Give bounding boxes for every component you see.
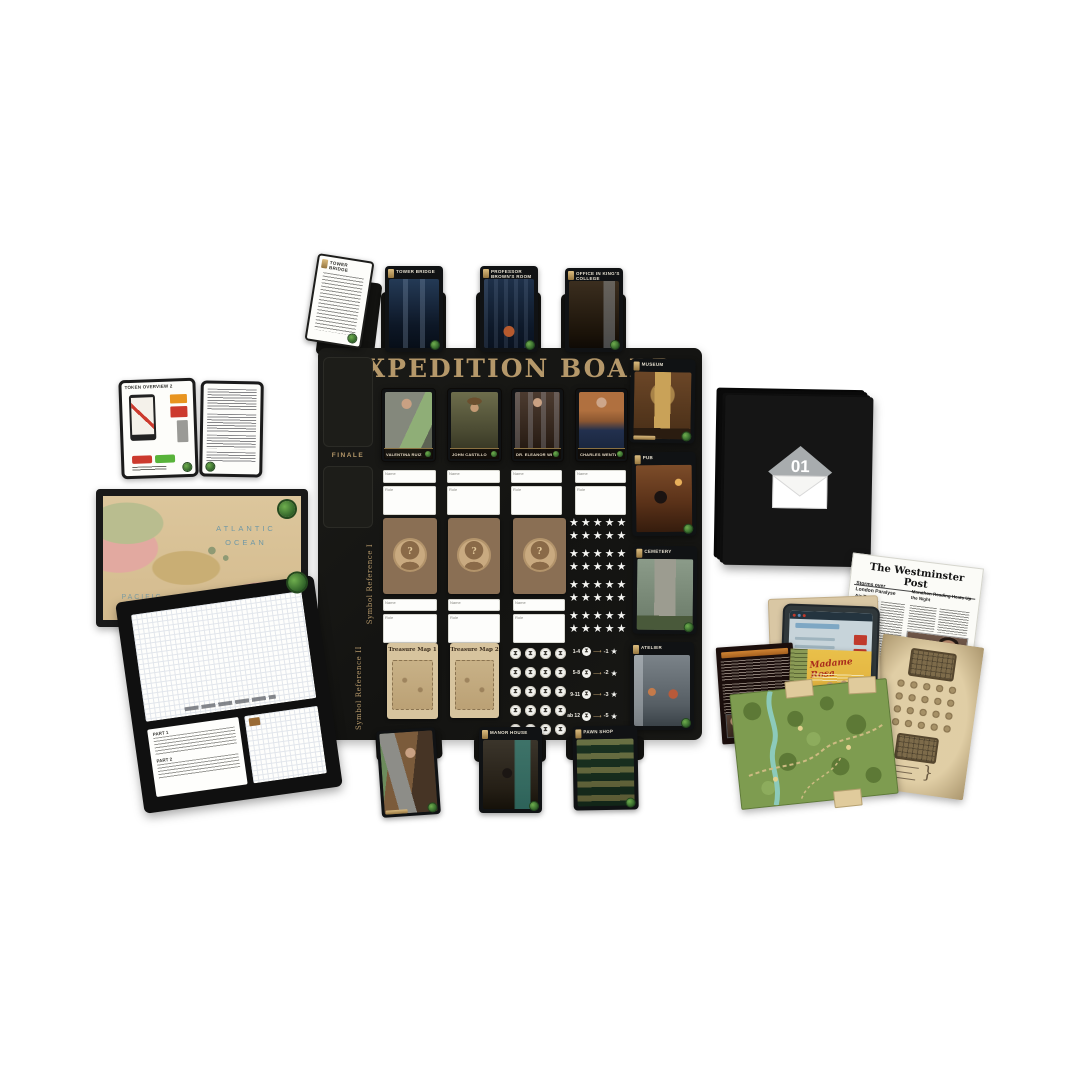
star-row: ★★★★★ xyxy=(569,516,628,529)
toolbar-dot-icon xyxy=(793,613,796,616)
mystery-character-card[interactable]: ? xyxy=(513,518,566,594)
star-icon: ★ xyxy=(569,517,579,529)
grid-note-sheet[interactable] xyxy=(244,706,327,784)
publisher-logo-icon xyxy=(684,525,692,533)
screen-link-bar xyxy=(795,623,839,630)
card-title: OFFICE IN KING'S COLLEGE xyxy=(576,271,620,281)
star-icon: ★ xyxy=(605,530,615,542)
text-lines xyxy=(721,657,791,682)
map-edge-tab xyxy=(833,788,863,808)
name-field[interactable]: Name xyxy=(447,470,500,483)
card-art xyxy=(636,465,693,532)
grid-note-sheet[interactable] xyxy=(131,591,316,722)
field-label: Name xyxy=(515,600,526,605)
star-icon: ★ xyxy=(605,517,615,529)
card-art xyxy=(634,655,690,726)
star-icon: ★ xyxy=(581,548,591,560)
phone-map-screen xyxy=(131,397,154,435)
star-icon: ★ xyxy=(581,592,591,604)
name-field[interactable]: Name xyxy=(511,470,562,483)
screen-text-line xyxy=(795,637,835,641)
star-penalty: -5 xyxy=(604,713,609,719)
location-type-icon xyxy=(575,729,581,738)
hourglass-token-icon[interactable]: ⧗ xyxy=(540,686,551,697)
token-overview-card[interactable]: TOKEN OVERVIEW 2 xyxy=(118,378,198,480)
location-card-manor-house[interactable]: MANOR HOUSE xyxy=(479,727,542,813)
star-icon: ★ xyxy=(593,517,603,529)
publisher-logo-icon xyxy=(617,451,623,457)
unknown-person-icon: ? xyxy=(523,538,557,572)
toolbar-dot-icon xyxy=(803,614,806,617)
stamp-icon xyxy=(249,717,261,726)
location-card-suitcase[interactable] xyxy=(376,727,441,818)
field-label: Role xyxy=(513,487,521,492)
publisher-logo-icon xyxy=(206,463,214,471)
star-icon: ★ xyxy=(581,623,591,635)
envelope-number: 01 xyxy=(791,457,810,476)
location-card-museum[interactable]: MUSEUM xyxy=(629,358,695,443)
symbol-reference-1-label: Symbol Reference I xyxy=(366,524,378,644)
stone-tablet-drawing xyxy=(894,733,939,765)
star-row: ★★★★★ xyxy=(569,529,628,542)
hourglass-token-icon[interactable]: ⧗ xyxy=(540,667,551,678)
character-card[interactable]: JOHN CASTILLO xyxy=(447,388,502,462)
token-range: 9-11 xyxy=(565,692,580,698)
name-field[interactable]: Name xyxy=(575,470,626,483)
publisher-logo-icon xyxy=(491,451,497,457)
token-range: ab 12 xyxy=(565,713,580,719)
notepad-board[interactable]: PART 1 PART 2 xyxy=(115,575,343,814)
character-name: CHARLES WENTWORTH xyxy=(580,452,616,457)
star-icon: ★ xyxy=(581,579,591,591)
newspaper-column xyxy=(907,605,937,632)
star-icon: ★ xyxy=(617,561,627,573)
star-icon: ★ xyxy=(617,517,627,529)
treasure-map-title: Treasure Map 2 xyxy=(450,647,499,653)
location-type-icon xyxy=(634,361,640,370)
name-field[interactable]: Name xyxy=(448,599,500,611)
text-lines xyxy=(207,435,256,450)
star-penalty: -3 xyxy=(604,692,609,698)
hourglass-token-grid: ⧗⧗⧗⧗⧗⧗⧗⧗⧗⧗⧗⧗⧗⧗⧗⧗⧗⧗⧗⧗ xyxy=(508,644,568,739)
hourglass-token-icon[interactable]: ⧗ xyxy=(525,686,536,697)
field-label: Name xyxy=(450,600,461,605)
character-name: JOHN CASTILLO xyxy=(452,452,490,457)
publisher-logo-icon xyxy=(553,451,559,457)
star-icon: ★ xyxy=(605,610,615,622)
star-icon: ★ xyxy=(593,623,603,635)
card-art xyxy=(633,372,691,440)
symbol-reference-2-label: Symbol Reference II xyxy=(355,645,367,731)
caption-text-lines xyxy=(132,466,166,472)
field-label: Role xyxy=(450,615,458,620)
publisher-logo-icon xyxy=(425,451,431,457)
star-icon: ★ xyxy=(581,517,591,529)
circle-glyph-grid xyxy=(888,676,961,737)
name-field[interactable]: Name xyxy=(383,599,437,611)
card-art xyxy=(484,279,534,348)
card-title: TOWER BRIDGE xyxy=(396,269,435,274)
empty-card-slot[interactable] xyxy=(323,466,373,528)
finale-label: FINALE xyxy=(323,452,373,459)
star-penalty: -1 xyxy=(604,649,609,655)
smartphone-illustration xyxy=(129,394,157,441)
card-footer-strip xyxy=(633,435,655,439)
publisher-logo-icon xyxy=(526,341,534,349)
location-type-icon xyxy=(636,549,642,558)
role-field[interactable]: Role xyxy=(383,486,436,515)
character-name: DR. ELEANOR WILDE xyxy=(516,452,552,457)
text-lines xyxy=(206,452,255,463)
star-icon: ★ xyxy=(569,579,579,591)
caption-text-line xyxy=(184,695,276,712)
field-label: Role xyxy=(385,615,393,620)
location-type-icon xyxy=(483,269,489,278)
star-penalty: -2 xyxy=(604,670,609,676)
location-card-pawn-shop[interactable]: PAWN SHOP xyxy=(572,725,638,810)
hourglass-token-icon[interactable]: ⧗ xyxy=(510,667,521,678)
field-label: Name xyxy=(449,471,460,476)
arrow-icon: ⟶ xyxy=(593,691,602,698)
red-button-token xyxy=(132,455,152,464)
game-components-scene: EXPEDITION BOARD FINALE Symbol Reference… xyxy=(0,0,1080,1080)
jungle-map-art xyxy=(730,679,897,809)
empty-card-slot[interactable] xyxy=(323,357,373,447)
arrow-icon: ⟶ xyxy=(593,670,602,677)
character-card[interactable]: DR. ELEANOR WILDE xyxy=(511,388,564,462)
hourglass-token-icon[interactable]: ⧗ xyxy=(525,667,536,678)
treasure-map-card[interactable]: Treasure Map 1 xyxy=(387,643,438,719)
treasure-map-art xyxy=(455,660,494,710)
card-title: MUSEUM xyxy=(642,362,664,368)
star-score-grid: ★★★★★★★★★★★★★★★★★★★★★★★★★★★★★★★★★★★★★★★★ xyxy=(569,516,628,640)
star-icon: ★ xyxy=(569,561,579,573)
overview-card-title: TOKEN OVERVIEW 2 xyxy=(124,383,189,390)
star-icon: ★ xyxy=(569,592,579,604)
publisher-logo-icon xyxy=(611,341,619,349)
star-icon: ★ xyxy=(593,610,603,622)
location-card-atelier[interactable]: ATELIER xyxy=(630,642,694,730)
treasure-map-art xyxy=(392,660,433,710)
green-button-token xyxy=(155,454,175,463)
star-row: ★★★★★ xyxy=(569,622,628,635)
handwritten-text xyxy=(314,272,364,336)
treasure-map-card[interactable]: Treasure Map 2 xyxy=(450,643,499,718)
location-type-icon xyxy=(388,269,394,278)
role-field[interactable]: Role xyxy=(448,614,500,643)
mystery-character-card[interactable]: ? xyxy=(448,518,500,594)
star-icon: ★ xyxy=(605,592,615,604)
star-icon: ★ xyxy=(569,610,579,622)
text-lines xyxy=(207,389,256,412)
star-icon: ★ xyxy=(569,530,579,542)
unknown-person-icon: ? xyxy=(457,538,491,572)
unknown-person-icon: ? xyxy=(393,538,427,572)
hourglass-token-icon[interactable]: ⧗ xyxy=(540,648,551,659)
arrow-icon: ⟶ xyxy=(593,713,602,720)
card-title: CEMETERY xyxy=(644,549,671,554)
map-edge-tab xyxy=(784,679,814,699)
location-card-professors-room[interactable]: PROFESSOR BROWN'S ROOM xyxy=(480,266,538,352)
question-mark: ? xyxy=(523,547,557,557)
publisher-logo-icon xyxy=(682,432,690,440)
hourglass-token-icon: ⧗ xyxy=(582,647,591,656)
card-title: MANOR HOUSE xyxy=(490,730,528,735)
red-token xyxy=(170,406,187,418)
star-row: ★★★★★ xyxy=(569,560,628,573)
token-range: 5-8 xyxy=(565,670,580,676)
publisher-logo-icon xyxy=(183,463,191,471)
hourglass-token-icon: ⧗ xyxy=(582,712,591,721)
card-art xyxy=(379,730,438,814)
card-art xyxy=(483,740,538,809)
hourglass-token-icon[interactable]: ⧗ xyxy=(510,705,521,716)
star-icon: ★ xyxy=(569,623,579,635)
stone-tablet-drawing xyxy=(908,648,957,682)
star-icon: ★ xyxy=(593,548,603,560)
character-name: VALENTINA RUIZ xyxy=(386,452,424,457)
role-field[interactable]: Role xyxy=(513,614,565,643)
star-icon: ★ xyxy=(617,530,627,542)
publisher-logo-icon xyxy=(685,623,693,631)
card-art xyxy=(576,739,634,807)
field-label: Role xyxy=(577,487,585,492)
star-icon: ★ xyxy=(593,592,603,604)
field-label: Name xyxy=(385,600,396,605)
card-art xyxy=(389,279,439,348)
star-row: ★★★★★ xyxy=(569,591,628,604)
arrow-icon: ⟶ xyxy=(593,648,602,655)
role-field[interactable]: Role xyxy=(383,614,437,643)
star-icon: ★ xyxy=(617,548,627,560)
star-icon: ★ xyxy=(593,561,603,573)
star-icon: ★ xyxy=(593,579,603,591)
star-row: ★★★★★ xyxy=(569,578,628,591)
publisher-logo-icon xyxy=(431,341,439,349)
token-range: 1-4 xyxy=(565,649,580,655)
jungle-expedition-map[interactable] xyxy=(729,678,898,810)
card-art xyxy=(569,281,619,348)
star-icon: ★ xyxy=(611,712,618,721)
orange-token xyxy=(170,394,187,404)
hourglass-token-icon: ⧗ xyxy=(582,690,591,699)
question-mark: ? xyxy=(457,547,491,557)
map-edge-tab xyxy=(848,676,877,694)
toolbar-dot-icon xyxy=(798,613,801,616)
publisher-logo-icon xyxy=(287,572,307,592)
star-icon: ★ xyxy=(605,623,615,635)
screen-red-box xyxy=(854,635,867,645)
question-mark: ? xyxy=(393,547,427,557)
card-title: PROFESSOR BROWN'S ROOM xyxy=(491,269,535,279)
mystery-character-card[interactable]: ? xyxy=(383,518,437,594)
role-field[interactable]: Role xyxy=(511,486,562,515)
star-icon: ★ xyxy=(611,647,618,656)
hourglass-token-icon[interactable]: ⧗ xyxy=(525,705,536,716)
star-row: ★★★★★ xyxy=(569,609,628,622)
field-label: Role xyxy=(385,487,393,492)
location-type-icon xyxy=(321,259,328,269)
star-icon: ★ xyxy=(617,592,627,604)
publisher-logo-icon xyxy=(530,802,538,810)
character-card[interactable]: VALENTINA RUIZ xyxy=(381,388,436,462)
field-label: Name xyxy=(385,471,396,476)
field-label: Role xyxy=(449,487,457,492)
card-title: ATELIER xyxy=(641,645,662,650)
star-icon: ★ xyxy=(617,579,627,591)
name-field[interactable]: Name xyxy=(513,599,565,611)
publisher-logo-icon xyxy=(627,798,635,806)
hourglass-token-icon[interactable]: ⧗ xyxy=(540,705,551,716)
curly-brace: } xyxy=(921,763,935,784)
location-card-office[interactable]: OFFICE IN KING'S COLLEGE xyxy=(565,268,623,352)
rules-text-card[interactable] xyxy=(199,380,264,477)
browser-toolbar xyxy=(790,611,873,622)
card-title: PAWN SHOP xyxy=(583,729,613,735)
star-icon: ★ xyxy=(593,530,603,542)
hourglass-token-icon[interactable]: ⧗ xyxy=(510,648,521,659)
text-lines xyxy=(207,414,256,433)
star-row: ★★★★★ xyxy=(569,547,628,560)
star-icon: ★ xyxy=(581,610,591,622)
star-icon: ★ xyxy=(605,579,615,591)
publisher-logo-icon xyxy=(279,501,295,517)
star-icon: ★ xyxy=(611,669,618,678)
star-icon: ★ xyxy=(611,690,618,699)
location-type-icon xyxy=(568,271,574,280)
field-label: Name xyxy=(513,471,524,476)
newspaper-column xyxy=(937,609,970,636)
card-footer-strip xyxy=(386,809,408,815)
character-card[interactable]: CHARLES WENTWORTH xyxy=(575,388,628,462)
star-icon: ★ xyxy=(581,561,591,573)
publisher-logo-icon xyxy=(682,719,690,727)
atlantic-ocean-label: ATLANTIC OCEAN xyxy=(203,522,289,551)
star-icon: ★ xyxy=(581,530,591,542)
role-field[interactable]: Role xyxy=(447,486,500,515)
field-label: Role xyxy=(515,615,523,620)
gray-token xyxy=(177,420,189,442)
field-label: Name xyxy=(577,471,588,476)
star-icon: ★ xyxy=(617,610,627,622)
star-icon: ★ xyxy=(605,561,615,573)
star-icon: ★ xyxy=(605,548,615,560)
role-field[interactable]: Role xyxy=(575,486,626,515)
card-title: PUB xyxy=(643,455,653,460)
treasure-map-title: Treasure Map 1 xyxy=(387,647,438,653)
location-card-cemetery[interactable]: CEMETERY xyxy=(633,546,698,635)
sealed-envelope-stack[interactable]: 01 xyxy=(723,395,874,568)
answer-sheet[interactable]: PART 1 PART 2 xyxy=(147,717,248,797)
location-type-icon xyxy=(633,645,639,654)
card-art xyxy=(637,559,694,630)
hourglass-token-icon[interactable]: ⧗ xyxy=(525,648,536,659)
star-icon: ★ xyxy=(569,548,579,560)
hourglass-token-icon: ⧗ xyxy=(582,669,591,678)
location-type-icon xyxy=(635,455,641,464)
envelope-number-icon: 01 xyxy=(764,445,835,512)
publisher-logo-icon xyxy=(348,334,357,343)
name-field[interactable]: Name xyxy=(383,470,436,483)
location-card-pub[interactable]: PUB xyxy=(632,452,697,537)
hourglass-token-icon[interactable]: ⧗ xyxy=(510,686,521,697)
location-type-icon xyxy=(482,730,488,739)
location-card-tower-bridge[interactable]: TOWER BRIDGE xyxy=(385,266,443,352)
star-icon: ★ xyxy=(617,623,627,635)
